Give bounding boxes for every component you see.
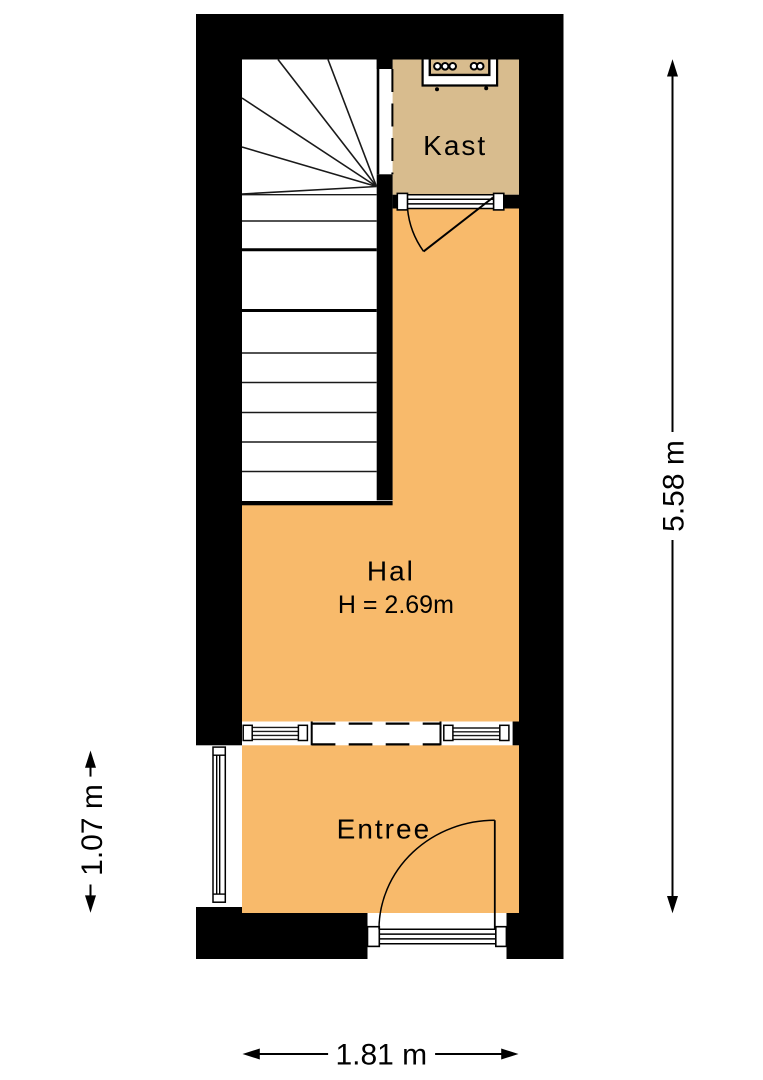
svg-text:1.81 m: 1.81 m — [335, 1038, 427, 1071]
svg-text:1.07 m: 1.07 m — [76, 784, 109, 876]
svg-text:Entree: Entree — [337, 813, 432, 844]
svg-text:H = 2.69m: H = 2.69m — [338, 591, 454, 619]
svg-text:Hal: Hal — [367, 556, 415, 587]
svg-text:Kast: Kast — [423, 130, 487, 161]
svg-text:5.58 m: 5.58 m — [657, 440, 690, 532]
